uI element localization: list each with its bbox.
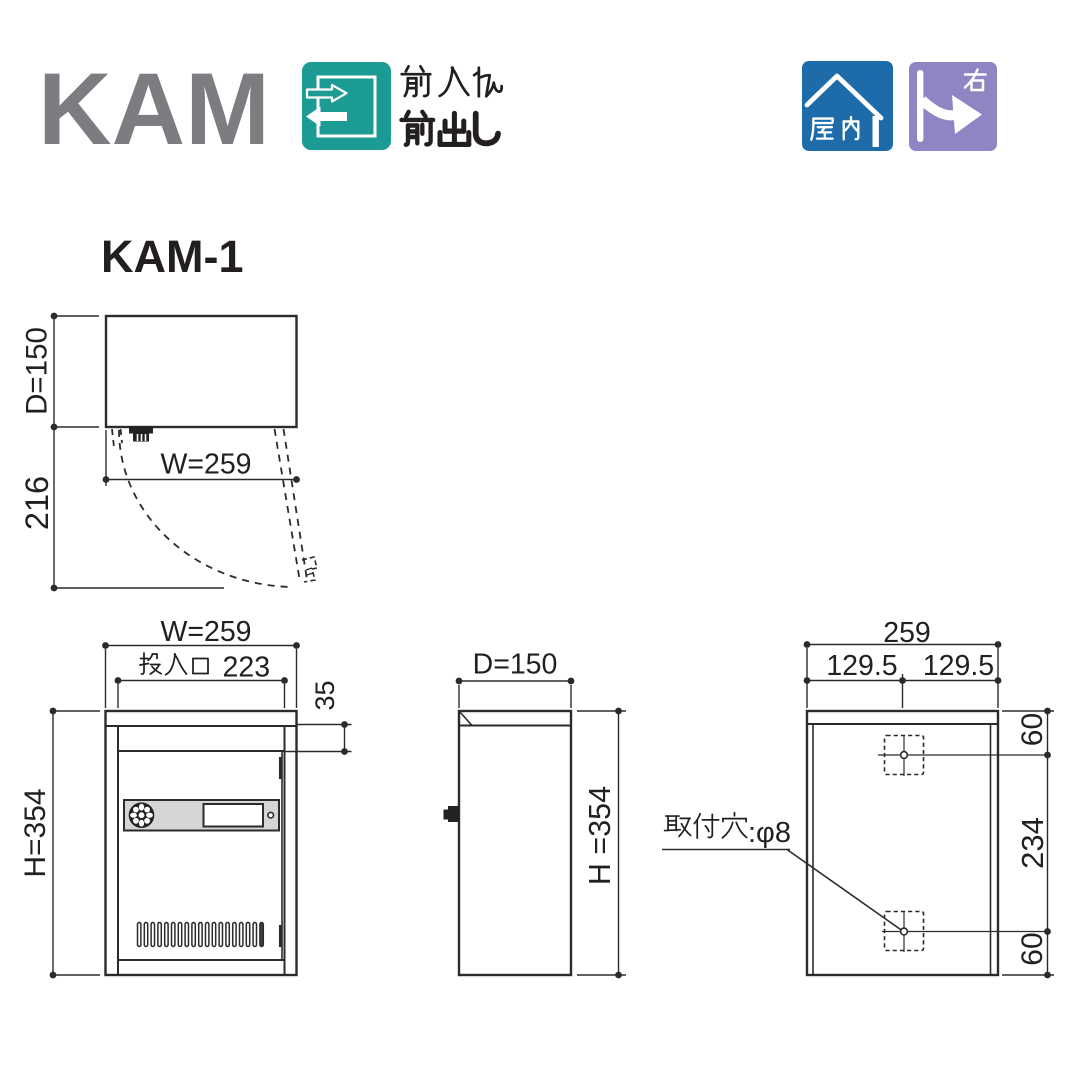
svg-text:216: 216 [19,476,55,530]
svg-text::φ8: :φ8 [748,817,791,849]
svg-text:W=259: W=259 [160,449,251,481]
svg-text:60: 60 [1016,713,1049,746]
svg-text:W=259: W=259 [160,616,251,648]
svg-text:60: 60 [1016,932,1049,965]
svg-text:H =354: H =354 [583,786,617,885]
svg-text:223: 223 [223,652,271,684]
svg-text:129.5: 129.5 [923,650,994,682]
svg-text:35: 35 [310,680,340,710]
svg-text:KAM-1: KAM-1 [101,231,244,282]
svg-text:H=354: H=354 [19,788,52,877]
svg-text:D=150: D=150 [473,649,558,681]
svg-text:D=150: D=150 [21,327,54,415]
svg-text:KAM: KAM [38,52,270,166]
svg-text:259: 259 [883,617,931,649]
svg-text:234: 234 [1015,817,1050,869]
svg-text:129.5: 129.5 [826,650,897,682]
